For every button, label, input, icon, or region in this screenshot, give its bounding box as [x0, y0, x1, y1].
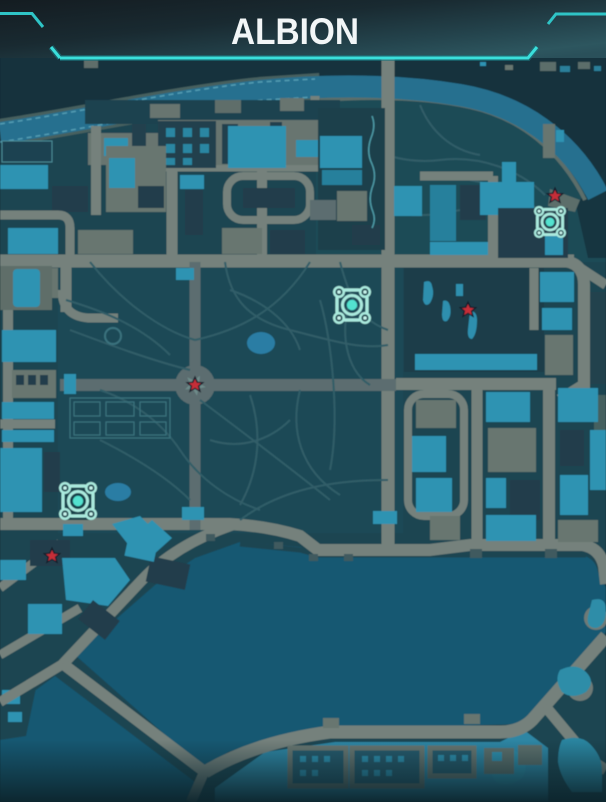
svg-text:ALBION: ALBION	[231, 11, 359, 52]
